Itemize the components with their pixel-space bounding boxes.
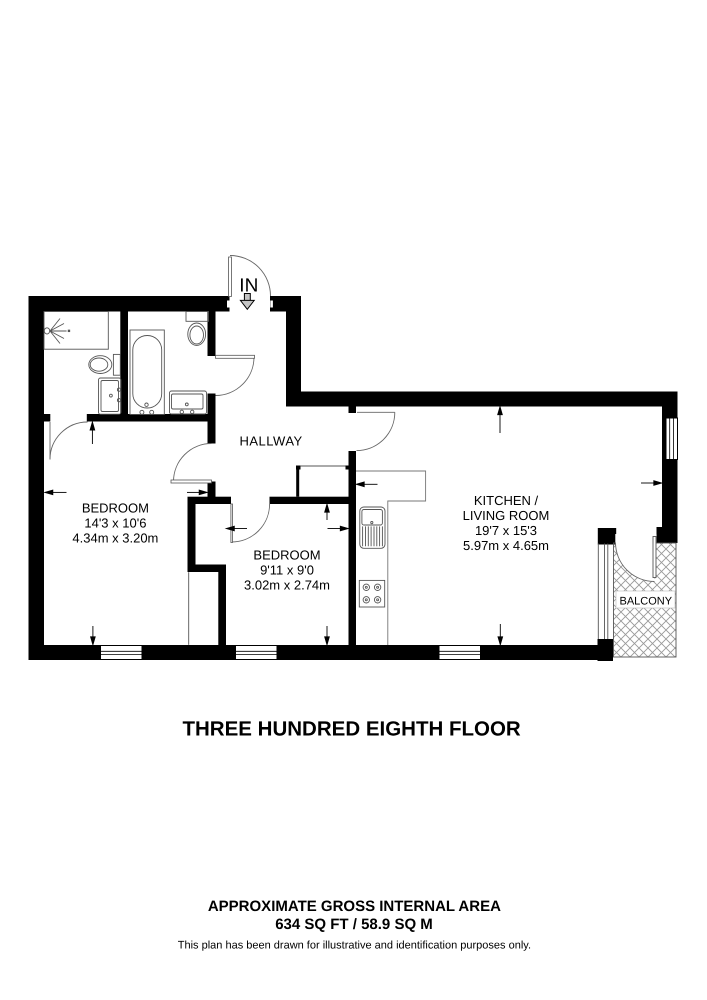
svg-text:BEDROOM: BEDROOM	[253, 547, 320, 562]
svg-text:This plan has been drawn for i: This plan has been drawn for illustrativ…	[178, 940, 531, 952]
svg-text:9'11 x 9'0: 9'11 x 9'0	[260, 562, 314, 577]
svg-text:3.02m x 2.74m: 3.02m x 2.74m	[244, 577, 330, 592]
svg-text:APPROXIMATE GROSS INTERNAL ARE: APPROXIMATE GROSS INTERNAL AREA	[208, 898, 501, 915]
svg-text:LIVING ROOM: LIVING ROOM	[463, 508, 550, 523]
svg-text:BEDROOM: BEDROOM	[82, 501, 149, 516]
svg-text:HALLWAY: HALLWAY	[239, 434, 302, 449]
svg-text:IN: IN	[239, 276, 258, 297]
svg-text:5.97m x 4.65m: 5.97m x 4.65m	[463, 538, 549, 553]
svg-text:634 SQ FT / 58.9 SQ M: 634 SQ FT / 58.9 SQ M	[275, 916, 433, 933]
svg-text:14'3 x 10'6: 14'3 x 10'6	[84, 516, 146, 531]
svg-text:KITCHEN /: KITCHEN /	[474, 493, 539, 508]
svg-text:BALCONY: BALCONY	[620, 595, 673, 607]
svg-text:THREE HUNDRED EIGHTH FLOOR: THREE HUNDRED EIGHTH FLOOR	[182, 717, 520, 740]
svg-text:19'7 x 15'3: 19'7 x 15'3	[475, 523, 537, 538]
svg-text:4.34m x 3.20m: 4.34m x 3.20m	[72, 531, 158, 546]
